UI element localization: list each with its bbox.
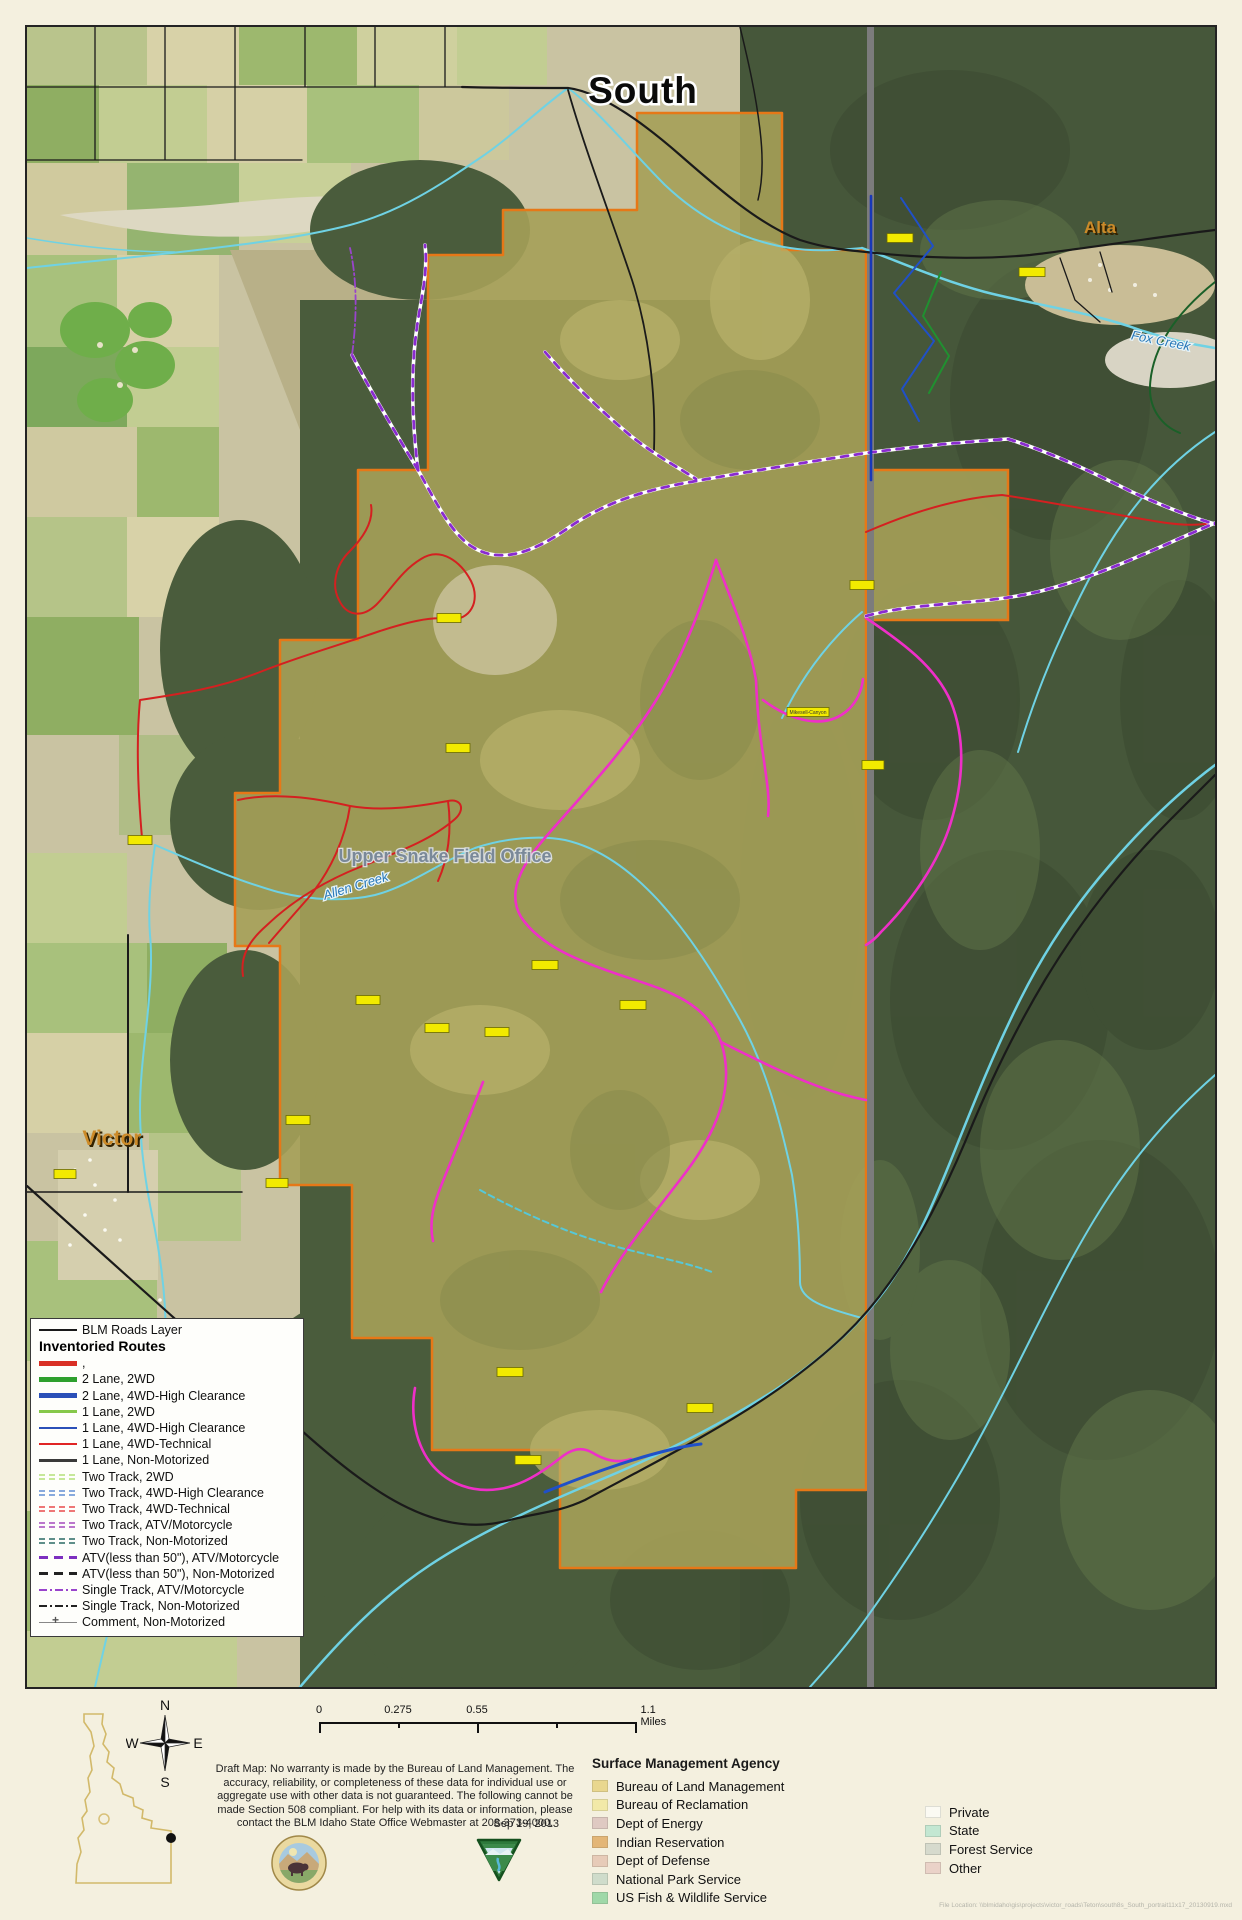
locator-ring: [99, 1814, 109, 1824]
agency-swatch: [592, 1836, 608, 1848]
route-id-label: [266, 1179, 288, 1188]
legend-entry: Two Track, 4WD-Technical: [39, 1501, 295, 1517]
agency-label: Dept of Defense: [616, 1853, 710, 1868]
agency-label: State: [949, 1823, 979, 1838]
route-id-label: [515, 1456, 541, 1465]
agency-label: Forest Service: [949, 1842, 1033, 1857]
legend-entry: +Comment, Non-Motorized: [39, 1614, 295, 1630]
agency-swatch: [592, 1780, 608, 1792]
agency-label: Bureau of Reclamation: [616, 1797, 748, 1812]
disclaimer: Draft Map: No warranty is made by the Bu…: [213, 1763, 577, 1831]
idaho-outline: [76, 1714, 171, 1883]
route-id-label: [485, 1028, 509, 1037]
legend-entry-label: 1 Lane, 4WD-Technical: [82, 1437, 211, 1451]
legend-symbol-line: [39, 1406, 77, 1417]
legend-entry: ,: [39, 1355, 295, 1371]
legend-title: Inventoried Routes: [39, 1338, 295, 1355]
scale-end-label: 1.1 Miles: [641, 1704, 674, 1728]
public-lands-logo: [474, 1834, 524, 1884]
legend-entry-label: Single Track, ATV/Motorcycle: [82, 1583, 244, 1597]
agency-label: Other: [949, 1861, 982, 1876]
agency-item: Indian Reservation: [592, 1833, 784, 1852]
legend-symbol-line: [39, 1390, 77, 1401]
agency-item: National Park Service: [592, 1870, 784, 1889]
agency-swatch: [592, 1855, 608, 1867]
agency-label: Dept of Energy: [616, 1816, 703, 1831]
legend-entry: ATV(less than 50"), ATV/Motorcycle: [39, 1549, 295, 1565]
legend-symbol-line: [39, 1423, 77, 1434]
legend-symbol-twotrack: [39, 1536, 77, 1547]
legend-entry-label: 2 Lane, 2WD: [82, 1372, 155, 1386]
legend-entry-label: 1 Lane, Non-Motorized: [82, 1453, 209, 1467]
route-id-label: [1019, 268, 1045, 277]
agency-item: US Fish & Wildlife Service: [592, 1889, 784, 1908]
legend-entry-label: ATV(less than 50"), Non-Motorized: [82, 1567, 274, 1581]
legend-entry-label: ,: [82, 1356, 85, 1370]
legend-symbol-line: [39, 1374, 77, 1385]
agency-swatch: [592, 1799, 608, 1811]
agency-swatch: [925, 1862, 941, 1874]
route-id-label: [862, 761, 884, 770]
legend-entry: 2 Lane, 4WD-High Clearance: [39, 1388, 295, 1404]
legend-entry-label: 1 Lane, 2WD: [82, 1405, 155, 1419]
agency-item: Dept of Defense: [592, 1851, 784, 1870]
agency-label: National Park Service: [616, 1872, 741, 1887]
compass-e: E: [193, 1735, 202, 1751]
route-id-label: [620, 1001, 646, 1010]
legend-symbol-line: [39, 1455, 77, 1466]
legend-symbol-line: [39, 1358, 77, 1369]
legend-symbol-twotrack: [39, 1471, 77, 1482]
agency-label: Bureau of Land Management: [616, 1779, 784, 1794]
legend-entry-label: Comment, Non-Motorized: [82, 1615, 225, 1629]
route-id-label: [356, 996, 380, 1005]
scale-tick-label: 0: [316, 1704, 322, 1716]
route-id-label: [437, 614, 461, 623]
legend-entry-label: Two Track, 4WD-High Clearance: [82, 1486, 264, 1500]
agency-legend-title: Surface Management Agency: [592, 1756, 784, 1771]
legend-entry-label: Single Track, Non-Motorized: [82, 1599, 240, 1613]
legend-entry: Two Track, Non-Motorized: [39, 1533, 295, 1549]
agency-label: US Fish & Wildlife Service: [616, 1890, 767, 1905]
agency-item: Forest Service: [925, 1840, 1033, 1859]
map-title: South: [588, 70, 698, 111]
map-date: Sep 19, 2013: [494, 1818, 559, 1832]
legend-symbol-dashdot: [39, 1601, 77, 1612]
route-id-label: [887, 234, 913, 243]
legend-roads-layer: BLM Roads Layer: [39, 1322, 295, 1338]
agency-swatch: [592, 1817, 608, 1829]
roads-layer-label: BLM Roads Layer: [82, 1323, 182, 1337]
agency-label: Private: [949, 1805, 989, 1820]
field-office-label: Upper Snake Field Office: [338, 846, 551, 866]
agency-item: Bureau of Reclamation: [592, 1796, 784, 1815]
route-id-label: [497, 1368, 523, 1377]
route-id-label: [54, 1170, 76, 1179]
legend-entry-label: Two Track, ATV/Motorcycle: [82, 1518, 233, 1532]
legend-entry-label: 2 Lane, 4WD-High Clearance: [82, 1389, 245, 1403]
route-id-label: [128, 836, 152, 845]
agency-item: State: [925, 1822, 1033, 1841]
scale-tick-label: 0.55: [466, 1704, 487, 1716]
legend-entry: Single Track, ATV/Motorcycle: [39, 1582, 295, 1598]
file-location-note: File Location: \\blmidaho\gis\projects\v…: [939, 1902, 1232, 1909]
legend-entry-label: Two Track, 2WD: [82, 1470, 174, 1484]
agency-item: Bureau of Land Management: [592, 1777, 784, 1796]
route-id-label: [687, 1404, 713, 1413]
comment-symbol-icon: +: [52, 1613, 59, 1627]
victor-label: Victor: [82, 1127, 141, 1150]
agency-legend: Surface Management Agency Bureau of Land…: [592, 1756, 784, 1907]
map-sheet: Mikesell-Canyon South Alta Alta Victor V…: [0, 0, 1242, 1920]
agency-label: Indian Reservation: [616, 1835, 724, 1850]
map-location-dot: [166, 1833, 176, 1843]
legend-entry: ATV(less than 50"), Non-Motorized: [39, 1566, 295, 1582]
route-id-label: [286, 1116, 310, 1125]
legend-entry: Single Track, Non-Motorized: [39, 1598, 295, 1614]
routes-legend: BLM Roads Layer Inventoried Routes ,2 La…: [30, 1318, 304, 1637]
agency-item: Private: [925, 1803, 1033, 1822]
legend-entry-label: ATV(less than 50"), ATV/Motorcycle: [82, 1551, 279, 1565]
agency-swatch: [925, 1843, 941, 1855]
legend-entry-label: Two Track, 4WD-Technical: [82, 1502, 230, 1516]
legend-entry: 1 Lane, 4WD-Technical: [39, 1436, 295, 1452]
legend-entry: Two Track, 2WD: [39, 1469, 295, 1485]
route-id-label: [850, 581, 874, 590]
legend-symbol-twotrack: [39, 1520, 77, 1531]
legend-entry-label: 1 Lane, 4WD-High Clearance: [82, 1421, 245, 1435]
agency-item: Dept of Energy: [592, 1814, 784, 1833]
legend-entry: 1 Lane, 4WD-High Clearance: [39, 1420, 295, 1436]
legend-entry: 1 Lane, Non-Motorized: [39, 1452, 295, 1468]
legend-entry: 2 Lane, 2WD: [39, 1371, 295, 1387]
agency-swatch: [592, 1892, 608, 1904]
legend-entry: Two Track, ATV/Motorcycle: [39, 1517, 295, 1533]
alta-label: Alta: [1084, 218, 1117, 237]
legend-symbol-dashdot: [39, 1584, 77, 1595]
legend-entry: 1 Lane, 2WD: [39, 1404, 295, 1420]
agency-item: Other: [925, 1859, 1033, 1878]
agency-swatch: [592, 1873, 608, 1885]
legend-symbol-twotrack: [39, 1487, 77, 1498]
route-id-label: [425, 1024, 449, 1033]
agency-swatch: [925, 1806, 941, 1818]
agency-swatch: [925, 1825, 941, 1837]
route-id-text: Mikesell-Canyon: [790, 710, 827, 716]
scale-bar: 0 0.275 0.55 1.1 Miles: [310, 1698, 690, 1740]
legend-symbol-twotrack: [39, 1503, 77, 1514]
legend-entry: Two Track, 4WD-High Clearance: [39, 1485, 295, 1501]
blm-logo: [270, 1834, 328, 1892]
idaho-locator: [72, 1712, 182, 1892]
legend-symbol-cross: +: [39, 1617, 77, 1628]
compass-n: N: [160, 1698, 170, 1713]
legend-entry-label: Two Track, Non-Motorized: [82, 1534, 228, 1548]
legend-symbol-line: [39, 1439, 77, 1450]
roads-layer-symbol: [39, 1325, 77, 1336]
scale-tick-label: 0.275: [384, 1704, 412, 1716]
route-id-label: [446, 744, 470, 753]
legend-symbol-dash: [39, 1552, 77, 1563]
route-id-label: [532, 961, 558, 970]
legend-symbol-dash: [39, 1568, 77, 1579]
